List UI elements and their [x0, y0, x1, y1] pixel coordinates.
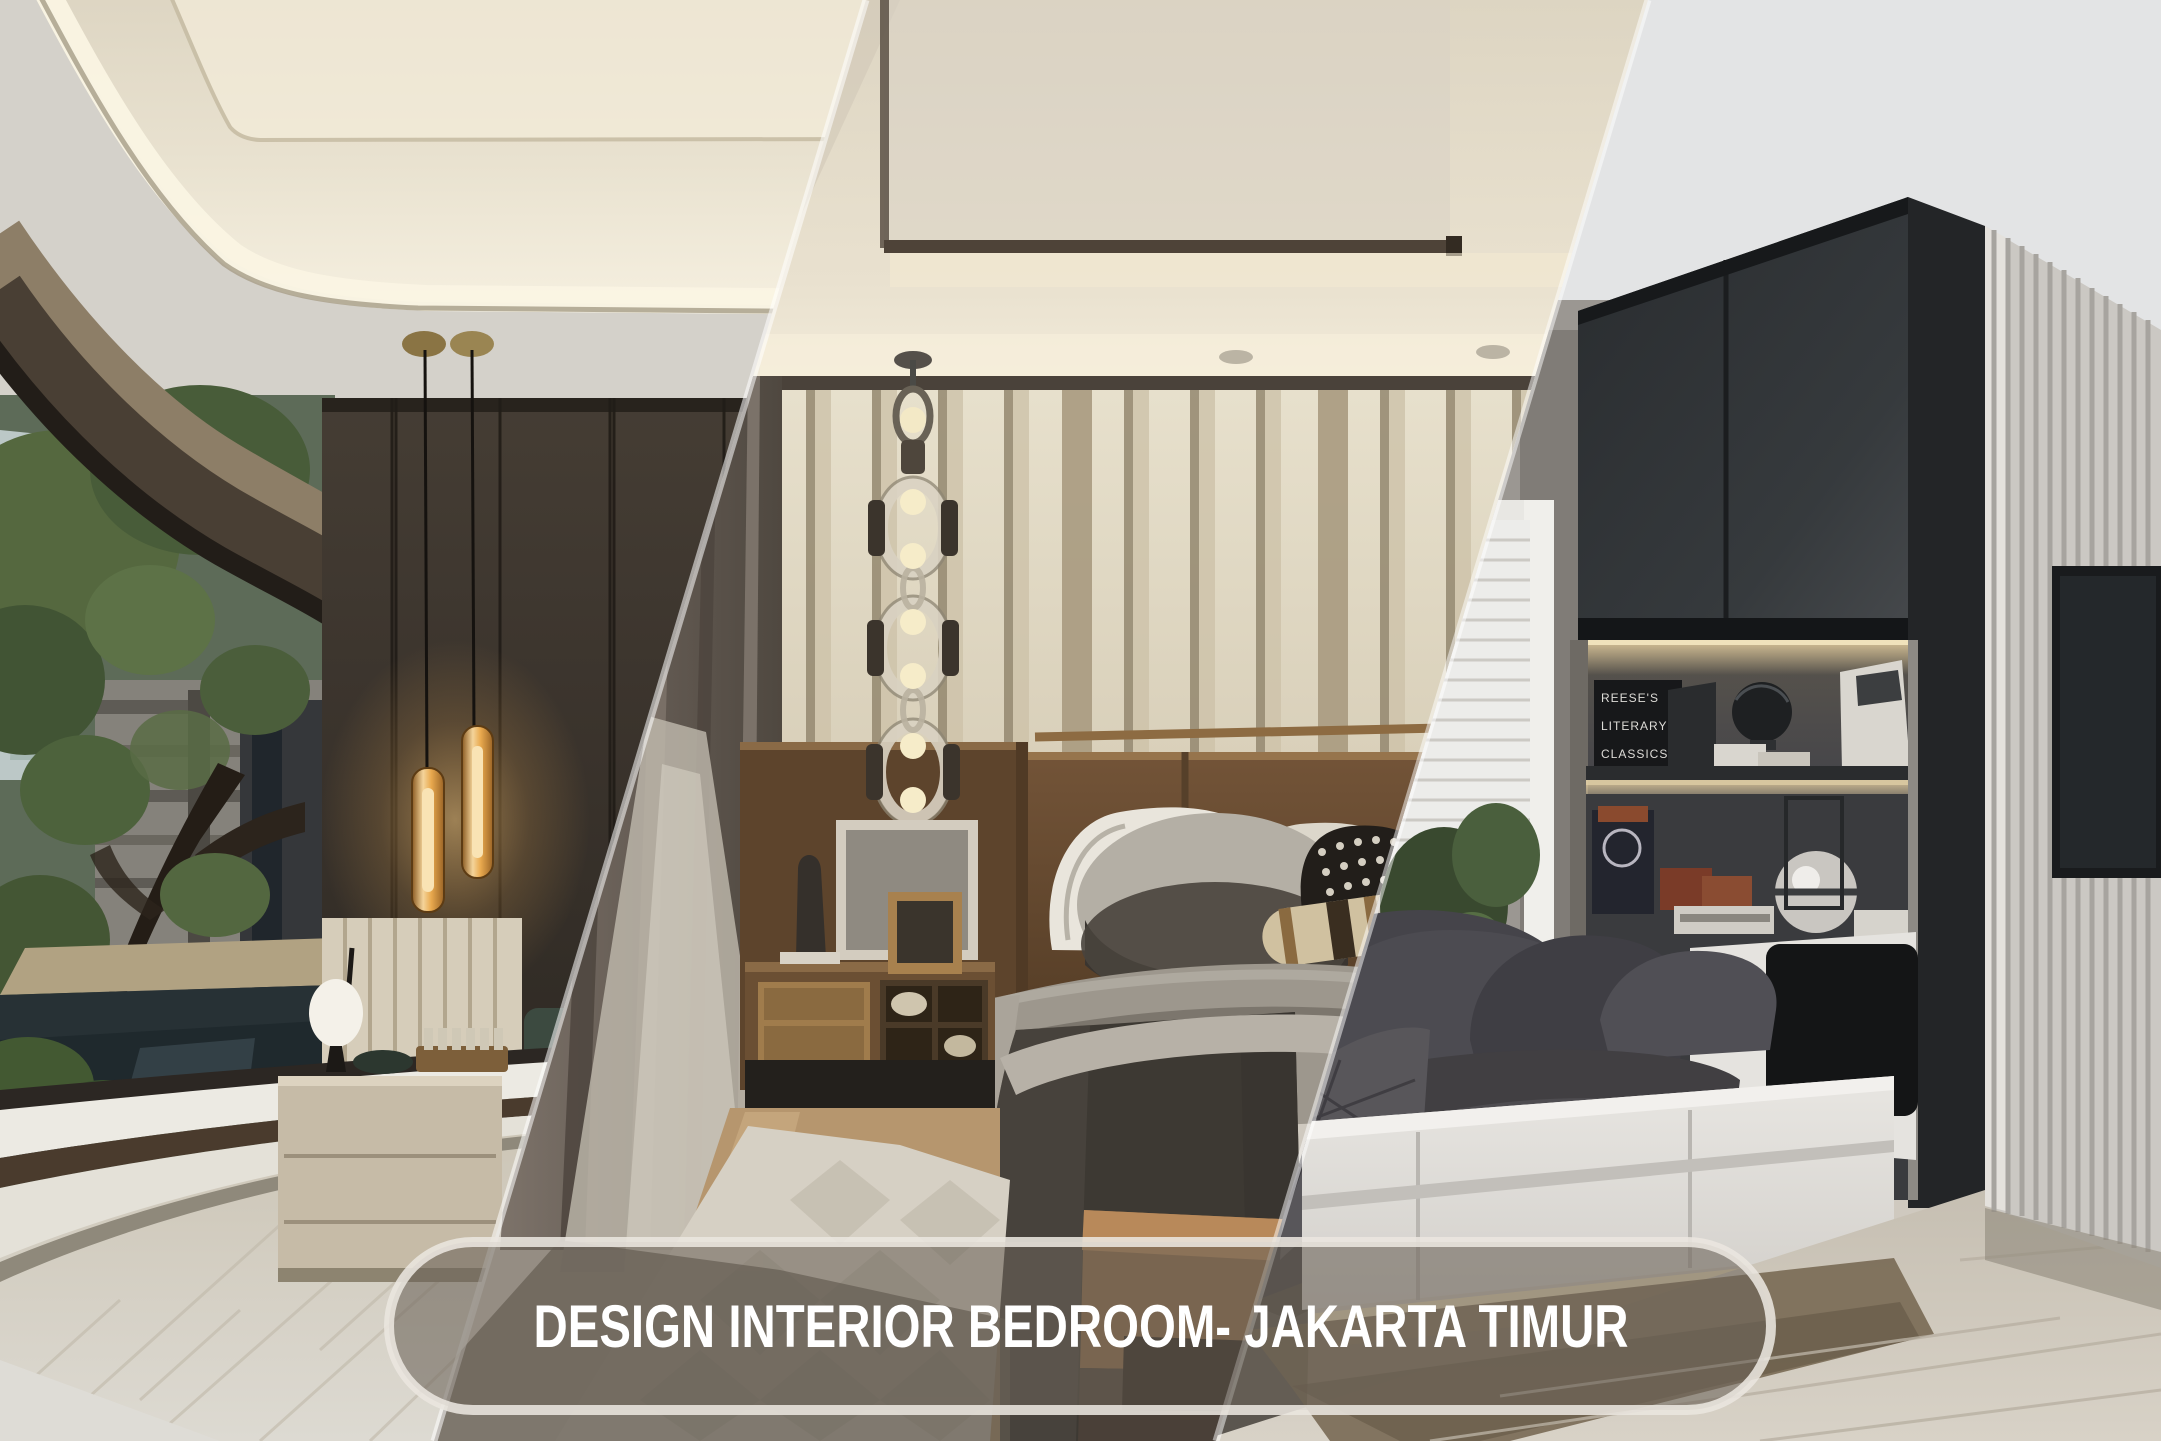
- svg-text:REESE'S: REESE'S: [1601, 691, 1659, 705]
- svg-text:LITERARY: LITERARY: [1601, 719, 1667, 733]
- svg-text:DESIGN INTERIOR BEDROOM- JAKAR: DESIGN INTERIOR BEDROOM- JAKARTA TIMUR: [533, 1294, 1628, 1361]
- svg-text:CLASSICS: CLASSICS: [1601, 747, 1668, 761]
